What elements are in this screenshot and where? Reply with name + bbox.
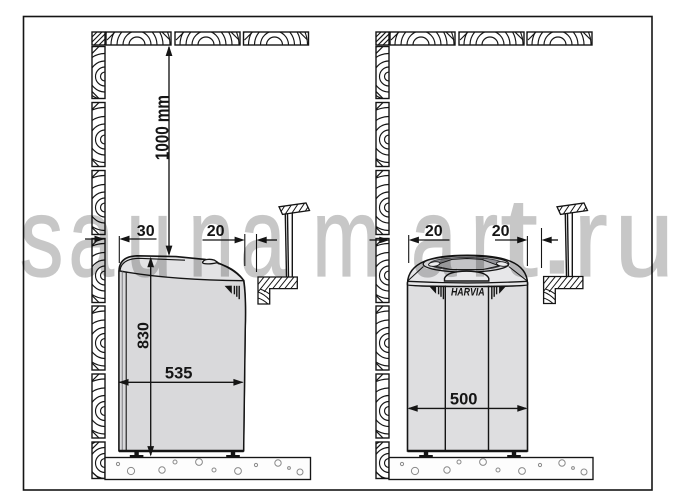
svg-text:830: 830 xyxy=(136,322,153,349)
svg-text:1000 mm: 1000 mm xyxy=(152,95,173,160)
svg-text:500: 500 xyxy=(450,390,478,408)
svg-text:.: . xyxy=(538,173,575,298)
svg-text:r: r xyxy=(471,174,498,300)
svg-text:a: a xyxy=(240,174,286,300)
svg-text:t: t xyxy=(500,176,537,301)
svg-text:s: s xyxy=(20,176,64,301)
svg-text:u: u xyxy=(126,174,171,300)
svg-text:n: n xyxy=(188,174,233,300)
svg-text:u: u xyxy=(615,176,674,301)
svg-text:a: a xyxy=(411,174,457,300)
svg-text:m: m xyxy=(312,174,380,300)
svg-text:535: 535 xyxy=(165,365,193,383)
svg-text:a: a xyxy=(69,174,115,300)
svg-text:r: r xyxy=(574,175,608,300)
